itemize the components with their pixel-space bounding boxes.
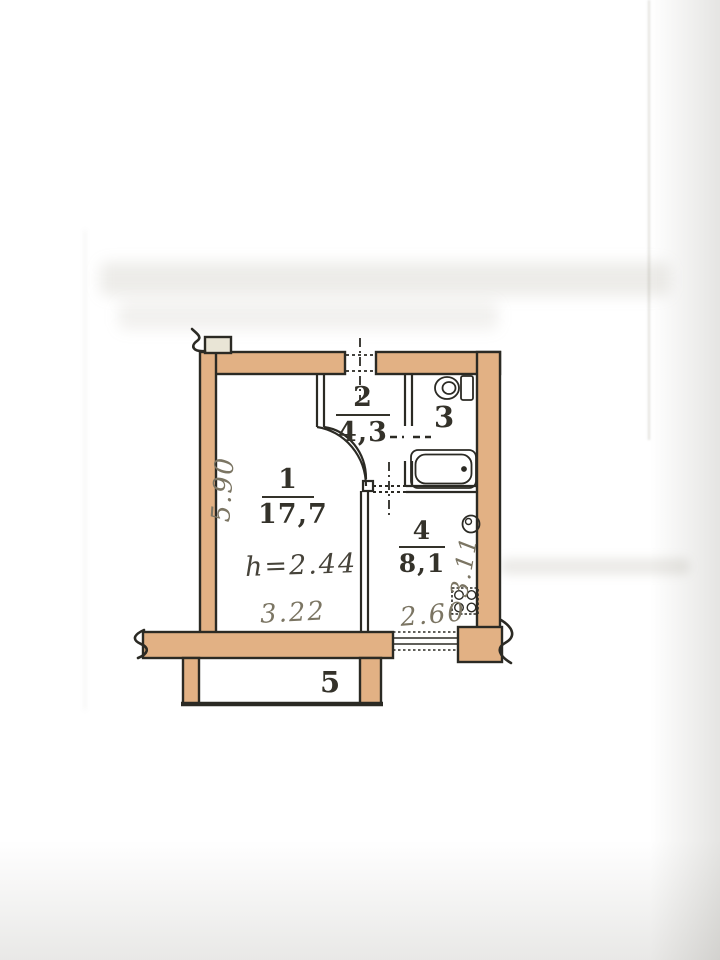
room-4-area: 8,1	[397, 551, 447, 577]
window-dotted-edges	[393, 632, 458, 650]
room-2-number: 2	[334, 384, 392, 412]
room-4-number: 4	[397, 518, 447, 544]
bottom-right-wall	[458, 627, 502, 662]
kitchen-window	[393, 632, 458, 650]
partition-room1-kitchen	[361, 491, 368, 632]
photo-shadow-right	[650, 0, 720, 960]
top-wall-notch	[205, 337, 231, 353]
door-jamb	[363, 481, 373, 491]
pin-head	[448, 783, 474, 818]
dimension-bottom-left: 3.22	[259, 596, 326, 629]
room-3-number: 3	[434, 400, 454, 434]
top-wall-left	[202, 352, 345, 374]
toilet-tank	[461, 376, 473, 400]
room-2-label: 2 4,3	[334, 384, 392, 448]
room-1-underline	[262, 496, 314, 498]
room-1-label: 1 17,7	[258, 466, 318, 530]
ceiling-height-label: h=2.44	[244, 548, 357, 583]
sink-inner	[466, 519, 472, 525]
toilet-bowl-inner	[443, 382, 456, 394]
break-top-left	[192, 329, 205, 351]
photo-shadow-bottom	[0, 840, 720, 960]
room-1-number: 1	[258, 466, 318, 494]
scanned-floorplan-photo: 2 4,3 3 1 17,7 h=2.44 4 8,1 5 5.90 3.22 …	[0, 0, 720, 960]
bathtub-drain	[462, 467, 466, 471]
room-2-area: 4,3	[334, 419, 392, 447]
dimension-bottom-right: 2.60	[399, 597, 467, 633]
window-glass-lines	[393, 638, 458, 644]
stove-burner	[467, 603, 476, 612]
room-2-underline	[336, 414, 390, 416]
partition-hall-bath-upper	[405, 374, 412, 426]
room-4-label: 4 8,1	[397, 518, 447, 578]
balcony-left-wall	[183, 658, 199, 704]
room-4-underline	[399, 546, 445, 548]
partition-room1-hall	[317, 374, 324, 427]
dimension-left: 5.90	[206, 441, 242, 523]
room-5-number: 5	[320, 665, 340, 699]
partition-bath-kitchen	[406, 486, 477, 492]
bottom-wall	[143, 632, 393, 658]
right-wall	[477, 352, 500, 630]
window-end-caps	[393, 632, 458, 650]
balcony-right-wall	[360, 658, 381, 704]
room-1-area: 17,7	[258, 501, 318, 529]
